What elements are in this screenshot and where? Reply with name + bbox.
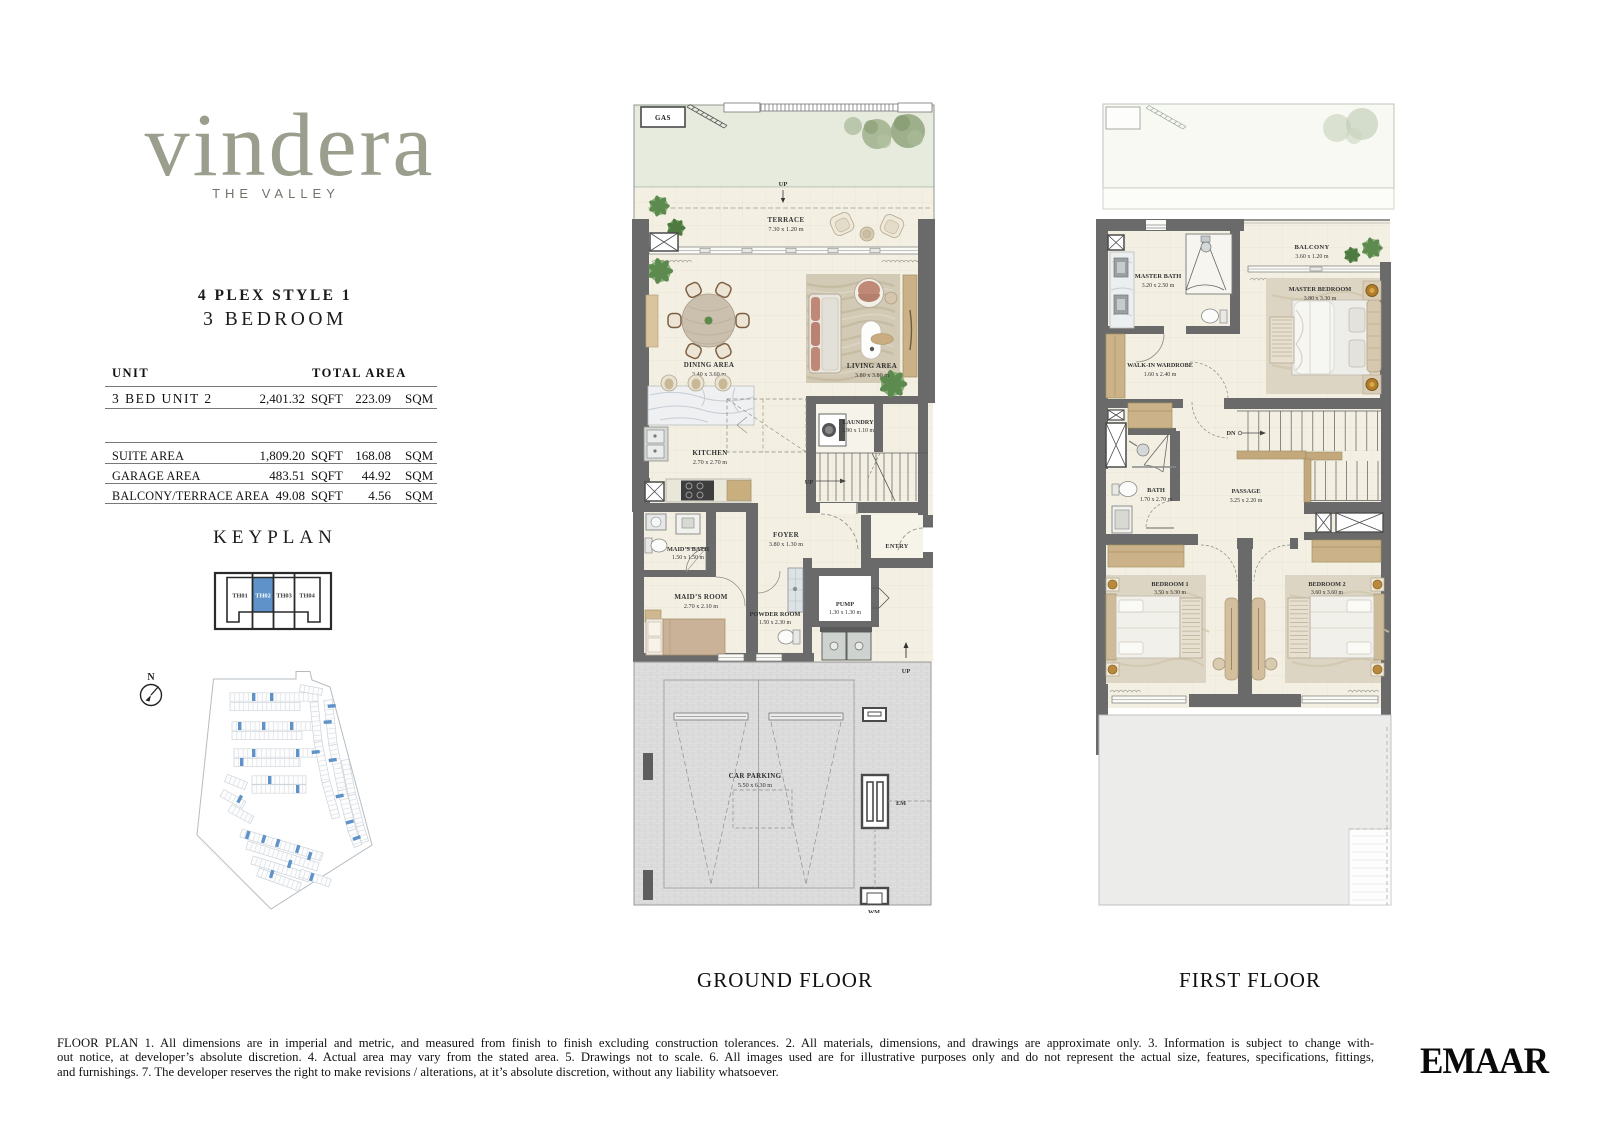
svg-text:2.90 x 1.10 m: 2.90 x 1.10 m xyxy=(842,428,875,434)
svg-text:WALK-IN WARDROBE: WALK-IN WARDROBE xyxy=(1127,362,1193,369)
svg-text:3.20 x 2.50 m: 3.20 x 2.50 m xyxy=(1142,283,1175,289)
svg-text:3.80 x 3.30 m: 3.80 x 3.30 m xyxy=(1304,296,1337,302)
svg-text:TH02: TH02 xyxy=(255,593,271,600)
svg-text:UP: UP xyxy=(805,479,814,486)
svg-text:MAID’S BATH: MAID’S BATH xyxy=(667,546,709,553)
svg-text:5.50 x 6.30 m: 5.50 x 6.30 m xyxy=(738,782,772,789)
svg-text:TERRACE: TERRACE xyxy=(767,216,804,224)
svg-text:BALCONY: BALCONY xyxy=(1294,244,1329,251)
svg-text:ENTRY: ENTRY xyxy=(885,543,908,550)
svg-text:3.80 x 1.30 m: 3.80 x 1.30 m xyxy=(769,541,803,548)
svg-text:N: N xyxy=(147,672,155,683)
svg-text:CAR PARKING: CAR PARKING xyxy=(729,772,782,780)
svg-text:GAS: GAS xyxy=(655,114,671,122)
svg-text:1.70 x 2.70 m: 1.70 x 2.70 m xyxy=(1140,497,1173,503)
svg-text:UP: UP xyxy=(902,668,911,675)
svg-text:LIVING AREA: LIVING AREA xyxy=(847,362,897,370)
svg-text:3.50 x 3.30 m: 3.50 x 3.30 m xyxy=(1154,590,1187,596)
svg-text:2.70 x 2.10 m: 2.70 x 2.10 m xyxy=(684,603,718,610)
svg-text:MASTER BEDROOM: MASTER BEDROOM xyxy=(1289,286,1352,293)
svg-text:2.70 x 2.70 m: 2.70 x 2.70 m xyxy=(693,459,727,466)
svg-text:3.80 x 3.80 m: 3.80 x 3.80 m xyxy=(855,372,889,379)
svg-text:BEDROOM 1: BEDROOM 1 xyxy=(1151,581,1188,588)
svg-text:MAID’S ROOM: MAID’S ROOM xyxy=(674,593,727,601)
svg-text:3.25 x 2.20 m: 3.25 x 2.20 m xyxy=(1230,498,1263,504)
svg-text:UP: UP xyxy=(779,181,788,188)
svg-text:BATH: BATH xyxy=(1147,487,1165,494)
svg-text:3.60 x 1.20 m: 3.60 x 1.20 m xyxy=(1295,254,1329,260)
svg-text:PUMP: PUMP xyxy=(836,601,854,608)
svg-text:1.50 x 2.30 m: 1.50 x 2.30 m xyxy=(759,620,792,626)
svg-text:KITCHEN: KITCHEN xyxy=(692,449,727,457)
svg-text:TH01: TH01 xyxy=(232,593,248,600)
svg-text:3.60 x 3.60 m: 3.60 x 3.60 m xyxy=(1311,590,1344,596)
svg-text:POWDER ROOM: POWDER ROOM xyxy=(750,611,801,618)
svg-text:DN: DN xyxy=(1226,430,1236,437)
svg-text:DINING AREA: DINING AREA xyxy=(684,361,735,369)
svg-text:TH03: TH03 xyxy=(276,593,292,600)
svg-text:FOYER: FOYER xyxy=(773,531,800,539)
svg-text:1.30 x 1.30 m: 1.30 x 1.30 m xyxy=(829,610,862,616)
svg-text:TH04: TH04 xyxy=(299,593,315,600)
svg-text:LAUNDRY: LAUNDRY xyxy=(842,419,874,426)
svg-text:PASSAGE: PASSAGE xyxy=(1231,488,1260,495)
svg-text:BEDROOM 2: BEDROOM 2 xyxy=(1308,581,1345,588)
svg-text:1.50 x 1.50 m: 1.50 x 1.50 m xyxy=(672,555,705,561)
svg-text:MASTER BATH: MASTER BATH xyxy=(1135,273,1182,280)
svg-text:7.30 x 1.20 m: 7.30 x 1.20 m xyxy=(768,226,803,233)
svg-text:1.60 x 2.40 m: 1.60 x 2.40 m xyxy=(1144,372,1177,378)
svg-text:WM: WM xyxy=(868,909,880,913)
